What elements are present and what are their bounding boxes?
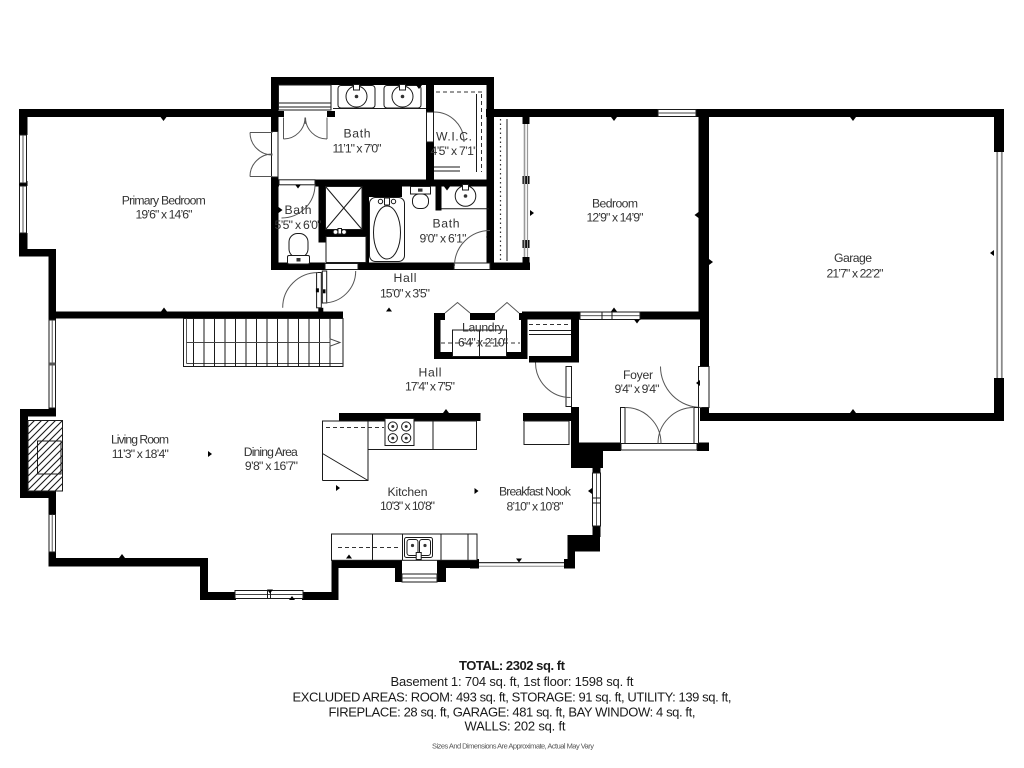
svg-text:W.I.C.: W.I.C. [436, 129, 472, 143]
svg-text:EXCLUDED AREAS: ROOM: 493 sq.: EXCLUDED AREAS: ROOM: 493 sq. ft, STORAG… [293, 690, 732, 705]
svg-text:Garage: Garage [834, 251, 872, 265]
svg-text:Bath: Bath [433, 217, 460, 231]
svg-text:Basement 1: 704 sq. ft, 1st fl: Basement 1: 704 sq. ft, 1st floor: 1598 … [391, 674, 634, 689]
svg-text:19’6" x 14’6": 19’6" x 14’6" [136, 208, 193, 222]
svg-text:Foyer: Foyer [623, 368, 653, 382]
svg-text:Breakfast Nook: Breakfast Nook [499, 484, 572, 498]
svg-text:Bedroom: Bedroom [592, 196, 638, 210]
svg-text:FIREPLACE: 28 sq. ft, GARAGE:: FIREPLACE: 28 sq. ft, GARAGE: 481 sq. ft… [329, 705, 696, 720]
svg-text:Primary Bedroom: Primary Bedroom [122, 193, 206, 207]
svg-text:Bath: Bath [344, 127, 371, 141]
svg-text:Kitchen: Kitchen [388, 485, 428, 499]
svg-text:5’5" x 6’0": 5’5" x 6’0" [275, 218, 322, 232]
svg-text:9’0" x 6’1": 9’0" x 6’1" [420, 232, 467, 246]
svg-text:Laundry: Laundry [462, 320, 505, 334]
svg-text:Hall: Hall [419, 365, 442, 379]
svg-text:Sizes And Dimensions Are Appro: Sizes And Dimensions Are Approximate, Ac… [432, 741, 594, 750]
svg-text:Hall: Hall [394, 271, 417, 285]
svg-text:Dining Area: Dining Area [244, 445, 298, 459]
svg-text:4’5" x 7’1": 4’5" x 7’1" [431, 144, 478, 158]
svg-text:Living Room: Living Room [111, 432, 169, 446]
svg-text:WALLS: 202 sq. ft: WALLS: 202 sq. ft [465, 719, 566, 734]
svg-text:Bath: Bath [285, 203, 312, 217]
svg-text:12’9" x 14’9": 12’9" x 14’9" [587, 211, 644, 225]
svg-text:6’4" x 2’10": 6’4" x 2’10" [458, 335, 508, 349]
svg-text:15’0" x 3’5": 15’0" x 3’5" [380, 287, 430, 301]
svg-text:10’3" x 10’8": 10’3" x 10’8" [380, 499, 435, 513]
svg-text:8’10" x 10’8": 8’10" x 10’8" [507, 500, 564, 514]
svg-text:21’7" x 22’2": 21’7" x 22’2" [827, 267, 884, 281]
svg-text:9’4" x 9’4": 9’4" x 9’4" [615, 382, 660, 396]
svg-text:TOTAL: 2302 sq. ft: TOTAL: 2302 sq. ft [459, 658, 566, 673]
svg-text:11’3" x 18’4": 11’3" x 18’4" [112, 447, 169, 461]
svg-text:9’8" x 16’7": 9’8" x 16’7" [245, 459, 298, 473]
svg-text:11’1" x 7’0": 11’1" x 7’0" [333, 141, 382, 155]
svg-text:17’4" x 7’5": 17’4" x 7’5" [405, 379, 455, 393]
